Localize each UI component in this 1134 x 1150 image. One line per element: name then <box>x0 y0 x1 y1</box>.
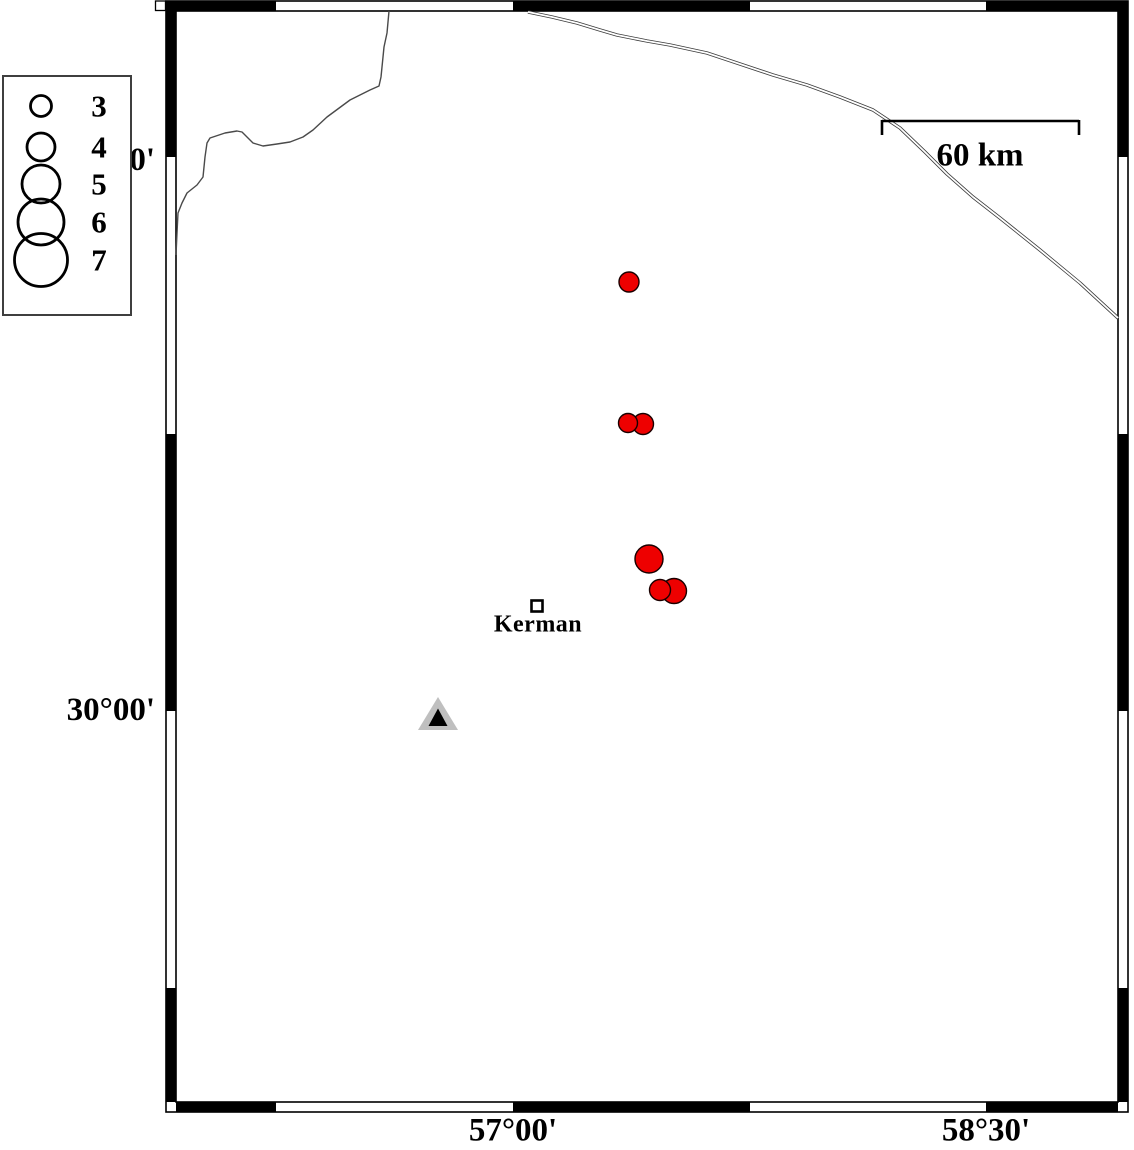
map-page: 31°30'30°00'57°00'58°30' 60 km Kerman 34… <box>0 0 1134 1150</box>
city-label: Kerman <box>494 612 582 639</box>
frame-band-right <box>1118 11 1128 1102</box>
legend-magnitude-label: 4 <box>91 130 107 165</box>
earthquake-marker <box>619 414 638 433</box>
frame-corner-square <box>156 1 166 11</box>
scale-bar-label: 60 km <box>936 138 1023 175</box>
lat-annotation: 30°00' <box>67 692 155 729</box>
station-marker <box>418 697 458 730</box>
lon-annotation: 58°30' <box>942 1113 1030 1150</box>
earthquake-layer <box>619 272 687 604</box>
legend-magnitude-circle <box>27 133 55 161</box>
magnitude-legend-canvas: 34567 <box>4 77 130 314</box>
scale-bar <box>882 120 1079 135</box>
legend-magnitude-label: 3 <box>91 89 107 124</box>
frame-band-left <box>166 2 176 1102</box>
legend-magnitude-circle <box>22 165 60 203</box>
lon-annotation: 57°00' <box>469 1113 557 1150</box>
frame-band-bottom <box>176 1102 1118 1112</box>
legend-magnitude-label: 5 <box>91 167 107 202</box>
road-line <box>528 12 1118 318</box>
magnitude-legend: 34567 <box>2 75 132 316</box>
legend-magnitude-label: 7 <box>91 243 107 278</box>
legend-magnitude-circle <box>31 96 52 117</box>
legend-magnitude-label: 6 <box>91 205 107 240</box>
city-square-marker <box>532 601 543 612</box>
legend-magnitude-circle <box>15 234 68 287</box>
earthquake-marker <box>650 580 671 601</box>
earthquake-marker <box>635 545 663 573</box>
earthquake-marker <box>619 272 639 292</box>
frame-band-top <box>166 1 1128 11</box>
admin-boundary-line <box>176 11 389 255</box>
